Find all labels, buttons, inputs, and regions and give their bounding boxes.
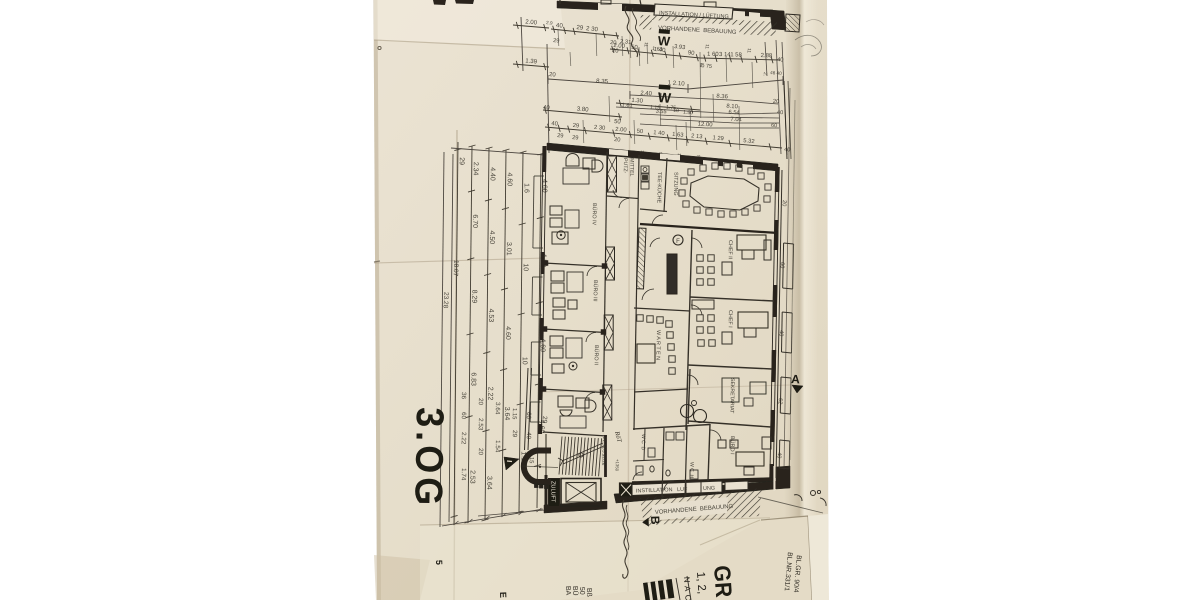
svg-text:40: 40 (775, 452, 782, 459)
svg-text:2.00: 2.00 (615, 127, 628, 134)
svg-text:CHEF II: CHEF II (727, 240, 733, 259)
svg-text:1.6: 1.6 (523, 183, 530, 193)
svg-text:℔ 75: ℔ 75 (700, 63, 712, 70)
svg-text:1.15: 1.15 (511, 408, 517, 420)
svg-text:1.63: 1.63 (672, 132, 684, 139)
svg-text:40: 40 (777, 57, 784, 64)
svg-text:11: 11 (747, 48, 752, 54)
svg-text:4.60: 4.60 (506, 172, 513, 186)
svg-text:12.00: 12.00 (697, 121, 713, 128)
svg-text:1 63: 1 63 (652, 46, 663, 53)
svg-text:3.55: 3.55 (655, 109, 666, 116)
svg-text:2.53: 2.53 (468, 470, 475, 484)
svg-text:3.64: 3.64 (494, 402, 501, 415)
svg-text:20: 20 (780, 200, 787, 207)
svg-text:PUTZ-: PUTZ- (622, 158, 628, 174)
svg-text:20: 20 (477, 398, 484, 406)
svg-text:W: W (657, 89, 672, 106)
svg-text:40: 40 (556, 22, 564, 30)
svg-text:20: 20 (477, 448, 484, 456)
svg-text:8.35: 8.35 (596, 78, 609, 86)
svg-text:50: 50 (614, 119, 622, 126)
svg-text:60: 60 (460, 412, 467, 420)
svg-text:MITTEL: MITTEL (628, 158, 634, 177)
svg-text:2.: 2. (763, 72, 768, 76)
svg-text:4.40: 4.40 (489, 167, 496, 181)
svg-text:5.32: 5.32 (743, 138, 755, 145)
svg-text:10: 10 (673, 108, 679, 114)
svg-text:SITZUNG: SITZUNG (672, 172, 678, 196)
svg-text:29: 29 (576, 24, 584, 32)
svg-text:8.36: 8.36 (716, 94, 729, 101)
svg-text:22.51/5.92/26: 22.51/5.92/26 (601, 437, 607, 466)
svg-text:1.30: 1.30 (631, 98, 644, 105)
svg-text:40: 40 (543, 105, 551, 112)
svg-text:Bß: Bß (585, 588, 592, 597)
svg-text:10: 10 (521, 357, 528, 365)
svg-text:3.93: 3.93 (674, 44, 686, 51)
svg-text:50: 50 (578, 587, 585, 595)
svg-text:F: F (676, 239, 680, 245)
svg-text:6.83: 6.83 (469, 372, 476, 386)
svg-text:1.74: 1.74 (460, 468, 467, 481)
svg-text:1 58: 1 58 (730, 52, 742, 58)
svg-text:1.39: 1.39 (525, 58, 538, 66)
svg-text:2 30: 2 30 (586, 25, 599, 33)
svg-text:CHEF I: CHEF I (727, 310, 733, 328)
svg-text:36: 36 (460, 392, 467, 400)
svg-text:B: B (648, 516, 662, 525)
svg-text:20: 20 (773, 99, 780, 105)
svg-text:23.28: 23.28 (442, 292, 450, 309)
svg-text:29: 29 (557, 133, 564, 140)
svg-text:60: 60 (778, 262, 785, 269)
svg-text:GR: GR (709, 565, 737, 599)
svg-text:29: 29 (572, 135, 579, 142)
svg-text:6.70: 6.70 (471, 214, 478, 228)
svg-text:62: 62 (776, 398, 783, 405)
svg-text:4.53: 4.53 (487, 309, 494, 323)
svg-text:1.54: 1.54 (494, 440, 501, 453)
svg-text:4.60: 4.60 (541, 179, 548, 193)
svg-text:TEE-KÜCHE: TEE-KÜCHE (655, 172, 663, 204)
svg-text:BÜRO IV: BÜRO IV (591, 203, 598, 226)
svg-text:40: 40 (784, 147, 791, 154)
svg-text:8.29: 8.29 (470, 290, 477, 304)
svg-text:4.60: 4.60 (504, 326, 511, 340)
svg-text:BÜRO III: BÜRO III (592, 280, 599, 302)
svg-text:3.OG: 3.OG (407, 407, 452, 510)
svg-text:5: 5 (434, 560, 444, 565)
svg-text:46 40: 46 40 (770, 70, 782, 76)
svg-text:3.64: 3.64 (503, 407, 510, 421)
svg-text:E: E (498, 592, 508, 598)
svg-text:2 30: 2 30 (594, 125, 607, 132)
svg-text:29: 29 (458, 157, 465, 165)
svg-text:1 40: 1 40 (653, 130, 666, 137)
svg-text:10: 10 (522, 263, 529, 271)
svg-text:4.50: 4.50 (488, 230, 495, 244)
svg-text:2.40: 2.40 (640, 91, 653, 98)
svg-text:60: 60 (771, 123, 777, 129)
svg-text:20: 20 (549, 72, 557, 79)
svg-text:29: 29 (572, 123, 579, 130)
svg-text:11: 11 (705, 44, 710, 50)
svg-text:40: 40 (777, 110, 784, 116)
svg-text:2.22: 2.22 (460, 432, 467, 445)
svg-text:BÜRO II: BÜRO II (593, 345, 600, 365)
svg-text:2 13: 2 13 (691, 133, 703, 140)
svg-text:1, 2,: 1, 2, (694, 571, 708, 594)
svg-text:1 29: 1 29 (712, 135, 724, 142)
svg-text:2.22: 2.22 (486, 387, 493, 401)
svg-text:20: 20 (612, 48, 619, 55)
svg-text:W C D: W C D (640, 434, 646, 451)
svg-text:3.64: 3.64 (485, 476, 492, 490)
svg-text:1 60: 1 60 (707, 52, 719, 58)
svg-text:+1350: +1350 (615, 459, 620, 472)
svg-text:20: 20 (614, 137, 621, 144)
svg-text:18.07: 18.07 (452, 260, 460, 277)
svg-text:3.01: 3.01 (505, 242, 512, 256)
svg-text:UNG: UNG (703, 486, 715, 492)
svg-text:A: A (791, 372, 801, 386)
svg-text:2.53: 2.53 (477, 418, 484, 431)
svg-text:2.88: 2.88 (761, 53, 773, 59)
svg-text:40: 40 (777, 330, 784, 337)
svg-text:BA: BA (564, 586, 571, 596)
svg-text:2.34: 2.34 (472, 162, 479, 176)
svg-text:29: 29 (511, 430, 518, 438)
svg-text:3.80: 3.80 (576, 105, 589, 113)
svg-text:1.50: 1.50 (683, 110, 694, 117)
svg-text:SEKRETARIAT: SEKRETARIAT (728, 378, 735, 414)
svg-text:2.9: 2.9 (546, 20, 553, 26)
svg-text:11: 11 (644, 42, 649, 48)
svg-text:2.00: 2.00 (525, 19, 538, 27)
svg-text:7.04: 7.04 (730, 117, 742, 124)
